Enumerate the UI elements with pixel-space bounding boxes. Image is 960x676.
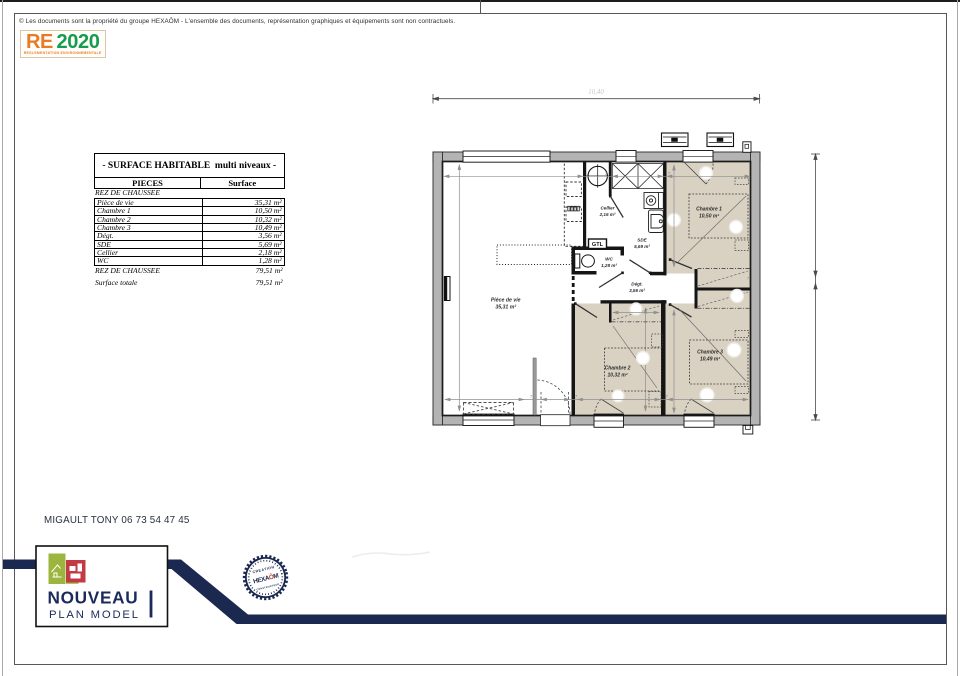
svg-text:PLAN MODEL: PLAN MODEL [49, 609, 140, 621]
svg-text:NOUVEAU: NOUVEAU [48, 588, 139, 608]
svg-text:Dégt.3,56 m²: Dégt.3,56 m² [629, 282, 645, 294]
svg-text:Chambre 310,49 m²: Chambre 310,49 m² [697, 350, 723, 363]
svg-text:SDE5,69 m²: SDE5,69 m² [634, 238, 650, 250]
svg-text:7: 7 [530, 394, 533, 399]
svg-text:WC1,28 m²: WC1,28 m² [601, 257, 617, 269]
svg-text:Pièce de vie35,31 m²: Pièce de vie35,31 m² [491, 298, 521, 311]
svg-text:Chambre 110,50 m²: Chambre 110,50 m² [696, 207, 722, 220]
svg-text:Cellier2,16 m²: Cellier2,16 m² [599, 206, 616, 218]
svg-text:10,40: 10,40 [588, 88, 604, 96]
svg-text:GTL: GTL [592, 242, 604, 248]
svg-text:Chambre 210,32 m²: Chambre 210,32 m² [605, 366, 631, 379]
